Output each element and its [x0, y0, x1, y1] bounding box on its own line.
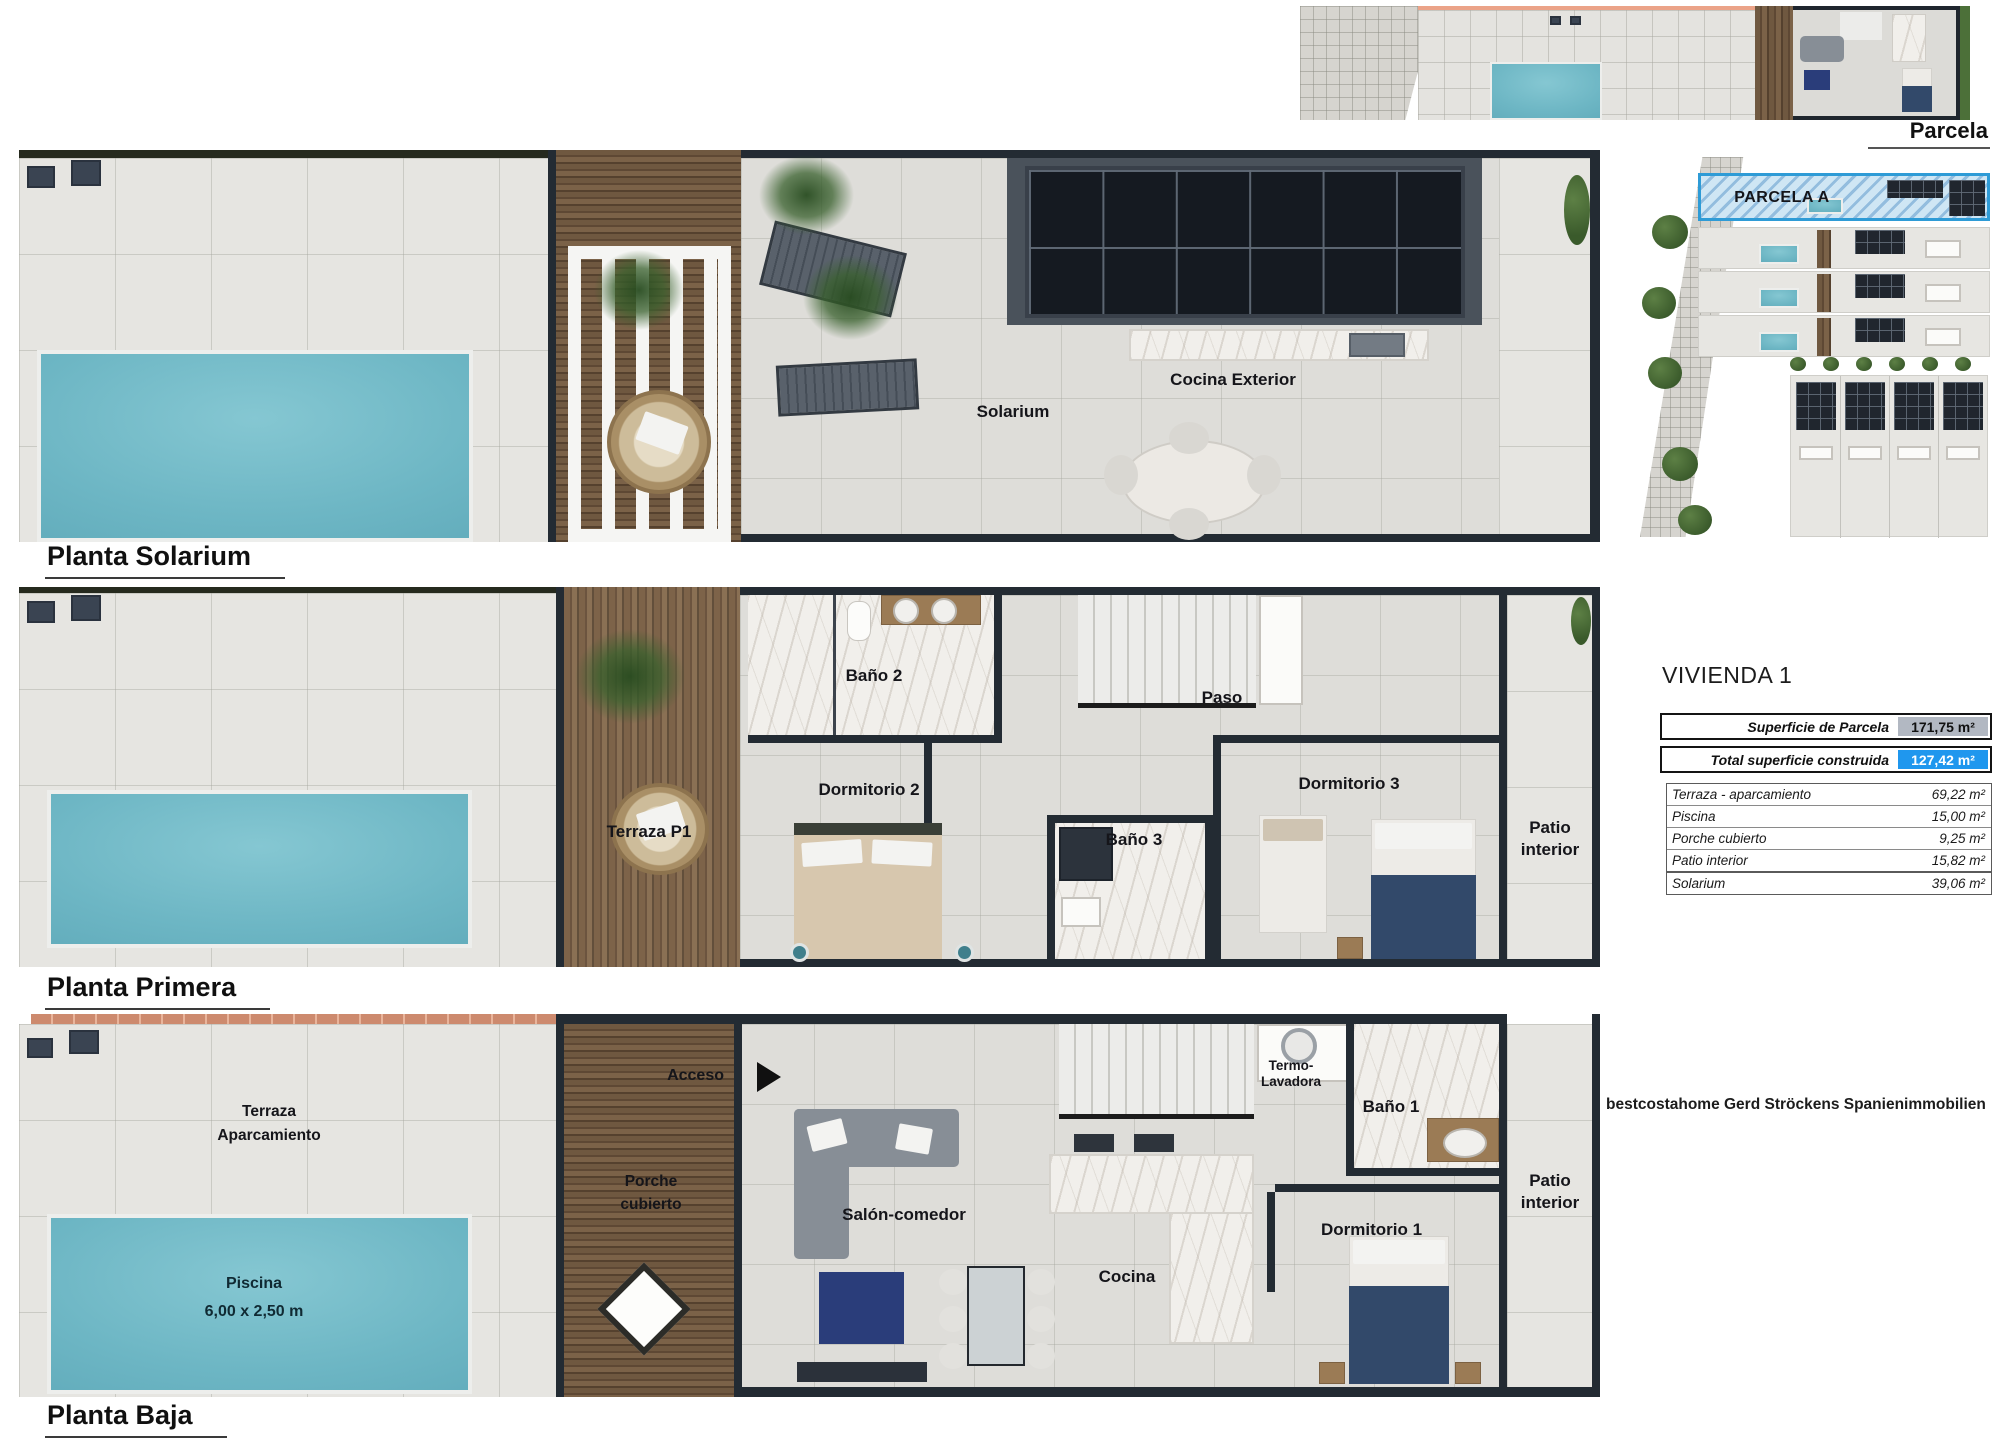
hedge-plant [1571, 597, 1591, 645]
dining-table [967, 1266, 1025, 1366]
watermark-text: bestcostahome Gerd Ströckens Spanienimmo… [1606, 1096, 1986, 1114]
wall [1047, 815, 1055, 967]
primera-pool [47, 790, 472, 948]
dining-chair [939, 1343, 967, 1369]
toilet [847, 601, 871, 641]
unit-divider [1840, 376, 1841, 538]
wall [1275, 1184, 1499, 1192]
tree [1642, 287, 1676, 319]
room-label-terraza-aparcamiento: Terraza Aparcamiento [184, 1100, 354, 1148]
garden-strip [1960, 6, 1970, 120]
mini-furniture [1897, 446, 1931, 460]
bed-blanket [1349, 1286, 1449, 1384]
dining-chair [1104, 455, 1138, 495]
summary-value: 171,75 m² [1898, 717, 1988, 736]
wall [1213, 735, 1499, 743]
wall [1205, 815, 1213, 967]
summary-label: Total superficie construida [1664, 750, 1898, 769]
mini-solar-panel [1894, 382, 1934, 430]
mini-furniture [1925, 240, 1961, 258]
room-label-salon-comedor: Salón-comedor [814, 1204, 994, 1226]
hedge-plant [1823, 357, 1839, 371]
rug [819, 1272, 904, 1344]
sofa-pillow [895, 1123, 933, 1155]
staircase [1840, 12, 1882, 40]
wall [1267, 1192, 1275, 1292]
sofa [1800, 36, 1844, 62]
table-row: Piscina15,00 m² [1667, 806, 1991, 828]
floor-light-icon [955, 943, 974, 962]
unit-divider [1938, 376, 1939, 538]
solar-panel-array [1025, 166, 1465, 318]
hedge-plant [1856, 357, 1872, 371]
mini-solar-panel [1855, 274, 1905, 298]
sun-lounger [776, 358, 919, 416]
mini-furniture [1946, 446, 1980, 460]
floorplan-sheet: Solarium Cocina Exterior Planta Solarium… [0, 0, 2000, 1448]
site-unit [1698, 271, 1990, 313]
ac-unit-icon [27, 166, 55, 188]
table-row: Patio interior15,82 m² [1667, 850, 1991, 871]
room-label-patio-interior: Patio interior [1502, 817, 1598, 861]
hedge-plant [1564, 175, 1590, 245]
room-label-termo-lavadora: Termo- Lavadora [1231, 1058, 1351, 1089]
rug [1804, 70, 1830, 90]
bed-headboard [794, 823, 942, 835]
mini-deck [1817, 318, 1831, 356]
room-label-cocina-exterior: Cocina Exterior [1113, 369, 1353, 391]
strip-pool [1490, 62, 1602, 120]
room-label-dormitorio1: Dormitorio 1 [1289, 1219, 1454, 1241]
ac-unit-icon [1570, 16, 1581, 25]
bed-blanket [1371, 875, 1476, 959]
mini-solar-panel [1855, 230, 1905, 254]
wall [556, 1014, 564, 1397]
ac-unit-icon [27, 601, 55, 623]
wall [740, 587, 1600, 595]
sink-unit [1061, 897, 1101, 927]
staircase [1059, 1024, 1254, 1116]
palm-plant [803, 255, 898, 340]
ac-unit-icon [1550, 16, 1561, 25]
room-label-acceso: Acceso [594, 1066, 724, 1087]
pool-label: Piscina 6,00 x 2,50 m [159, 1270, 349, 1326]
mini-solar-panel [1845, 382, 1885, 430]
room-label-cocina: Cocina [1067, 1266, 1187, 1288]
room-label-bano2: Baño 2 [809, 665, 939, 687]
street-pavement [1300, 6, 1435, 120]
unit-divider [1889, 376, 1890, 538]
sink [1443, 1128, 1487, 1158]
room-label-dormitorio3: Dormitorio 3 [1269, 773, 1429, 795]
mini-furniture [1925, 284, 1961, 302]
wall [19, 150, 556, 158]
mini-pool [1759, 332, 1799, 352]
room-label-solarium: Solarium [943, 401, 1083, 423]
room-label-bano3: Baño 3 [1079, 829, 1189, 851]
vivienda-title: VIVIENDA 1 [1662, 662, 1792, 689]
wall [564, 1014, 1499, 1024]
room-label-bano1: Baño 1 [1331, 1096, 1451, 1118]
wall [1793, 6, 1960, 10]
wall [741, 534, 1600, 542]
floor-plan-primera: Terraza P1 Baño 2 Paso Dormitorio 2 [19, 587, 1600, 967]
mini-deck [1817, 274, 1831, 312]
mini-furniture [1848, 446, 1882, 460]
hedge-plant [1889, 357, 1905, 371]
bar-stool [1074, 1134, 1114, 1152]
nightstand [1319, 1362, 1345, 1384]
room-label-dormitorio2: Dormitorio 2 [784, 779, 954, 801]
entrance-arrow-icon [757, 1062, 781, 1092]
room-label-paso: Paso [1167, 687, 1277, 709]
tree [1678, 505, 1712, 535]
wall [1346, 1168, 1499, 1176]
hedge-plant [1955, 357, 1971, 371]
wall [994, 595, 1002, 743]
parcela-strip-label: Parcela [1790, 118, 1990, 149]
sink [893, 598, 919, 624]
parcela-strip-plan [1300, 6, 1970, 120]
bed-pillow [1263, 819, 1323, 841]
dining-chair [1169, 508, 1209, 540]
mini-pool [1759, 244, 1799, 264]
floor-title-solarium: Planta Solarium [45, 541, 285, 579]
mini-pool [1759, 288, 1799, 308]
summary-row-parcela: Superficie de Parcela 171,75 m² [1660, 713, 1992, 740]
bed-pillow [871, 839, 932, 866]
outdoor-kitchen-sink [1349, 333, 1405, 357]
floor-light-icon [790, 943, 809, 962]
wall [556, 587, 564, 967]
solarium-pool [37, 350, 473, 542]
floor-title-primera: Planta Primera [45, 972, 270, 1010]
wall [1499, 587, 1507, 967]
tree [1652, 215, 1688, 249]
wall [548, 150, 556, 542]
dining-chair [939, 1306, 967, 1332]
stair-rail [1059, 1114, 1254, 1119]
ac-unit-icon [69, 1030, 99, 1054]
wall [1213, 735, 1221, 967]
mini-solar-panel [1943, 382, 1983, 430]
kitchen-counter [1049, 1154, 1254, 1214]
room-label-terraza-p1: Terraza P1 [579, 821, 719, 843]
bar-stool [1134, 1134, 1174, 1152]
table-row: Porche cubierto9,25 m² [1667, 828, 1991, 850]
nightstand [1455, 1362, 1481, 1384]
palm-plant [575, 629, 685, 724]
table-row: Terraza - aparcamiento69,22 m² [1667, 784, 1991, 806]
summary-value: 127,42 m² [1898, 750, 1988, 769]
mini-deck [1817, 230, 1831, 268]
site-unit [1698, 227, 1990, 269]
room-label-patio-interior: Patio interior [1502, 1170, 1598, 1214]
site-plan: PARCELA A [1640, 147, 1992, 537]
wall [1592, 587, 1600, 967]
mini-solar-panel [1796, 382, 1836, 430]
summary-row-construida: Total superficie construida 127,42 m² [1660, 746, 1992, 773]
dining-chair [1247, 455, 1281, 495]
parcela-a-label: PARCELA A [1707, 188, 1857, 209]
mini-furniture [1925, 328, 1961, 346]
brick-wall [31, 1014, 564, 1024]
ac-unit-icon [71, 595, 101, 621]
site-lower-block [1790, 375, 1988, 537]
wall [740, 1387, 1600, 1397]
hedge-plant [1922, 357, 1938, 371]
bed-pillow [1375, 823, 1472, 849]
solarium-row-table: Solarium39,06 m² [1666, 872, 1992, 895]
mini-solar-panel [1949, 180, 1985, 216]
dining-chair [1027, 1306, 1055, 1332]
tree [1662, 447, 1698, 481]
floor-plan-baja: Terraza Aparcamiento Piscina 6,00 x 2,50… [19, 1014, 1600, 1397]
mini-solar-panel [1855, 318, 1905, 342]
dining-chair [1169, 422, 1209, 454]
sink [931, 598, 957, 624]
wall [734, 1014, 742, 1397]
mini-solar-panel [1887, 180, 1943, 198]
wall [741, 150, 1600, 158]
palm-plant [594, 250, 684, 330]
bed-pillow [801, 839, 863, 867]
palm-plant [759, 155, 854, 235]
dining-chair [1027, 1269, 1055, 1295]
patio-floor [1507, 595, 1592, 959]
wall [19, 587, 556, 593]
table-row: Solarium39,06 m² [1667, 873, 1991, 894]
dining-chair [1027, 1343, 1055, 1369]
bed-blanket [1902, 86, 1932, 112]
tree [1648, 357, 1682, 389]
tv-sideboard [797, 1362, 927, 1382]
room-label-porche-cubierto: Porche cubierto [581, 1170, 721, 1217]
wood-deck [1755, 6, 1793, 120]
detail-table: Terraza - aparcamiento69,22 m² Piscina15… [1666, 783, 1992, 872]
floor-title-baja: Planta Baja [45, 1400, 227, 1438]
mini-furniture [1799, 446, 1833, 460]
site-unit [1698, 315, 1990, 357]
kitchen-counter [1892, 14, 1926, 62]
nightstand [1337, 937, 1363, 959]
floor-plan-solarium: Solarium Cocina Exterior [19, 150, 1600, 542]
parcela-a-unit: PARCELA A [1698, 173, 1990, 221]
wall [740, 959, 1600, 967]
dining-chair [939, 1269, 967, 1295]
ac-unit-icon [71, 160, 101, 186]
hedge-plant [1790, 357, 1806, 371]
wall [1047, 815, 1213, 823]
bed-pillow [1353, 1240, 1445, 1264]
wall [1590, 150, 1600, 542]
ac-unit-icon [27, 1038, 53, 1058]
summary-label: Superficie de Parcela [1664, 717, 1898, 736]
wall [748, 735, 994, 743]
